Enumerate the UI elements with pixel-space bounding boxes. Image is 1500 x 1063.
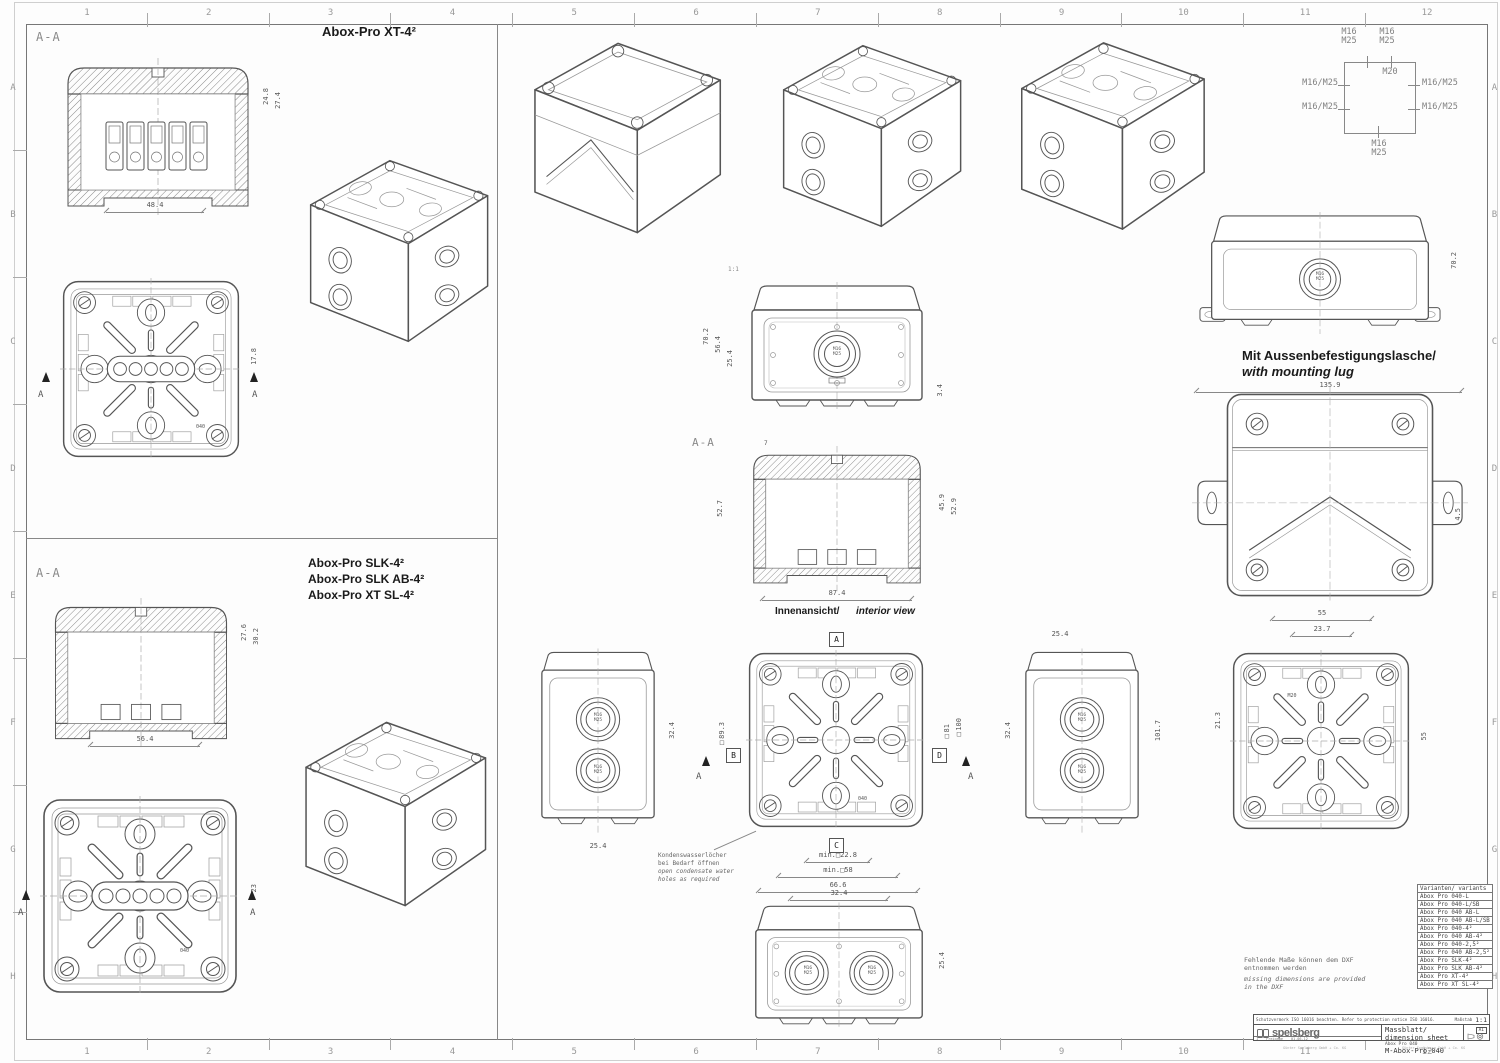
dim-line — [790, 900, 888, 901]
grid-row-label: C — [3, 278, 23, 405]
knockout-text: M16 M25 — [823, 347, 851, 357]
dim-label: min.□22.8 — [800, 851, 876, 859]
knockout-size-label: M20 — [1374, 68, 1406, 77]
view-iso-xt — [283, 140, 495, 362]
variant-name: Abox Pro 040-4² — [1418, 925, 1493, 933]
dim-label: 32.4 — [1004, 722, 1012, 739]
dim-label: 3.4 — [936, 384, 944, 397]
tick — [1408, 109, 1420, 110]
dim-line — [106, 212, 204, 213]
mold-code: 040 — [180, 948, 189, 954]
tick — [1367, 56, 1368, 68]
grid-col-label: 7 — [757, 1042, 879, 1061]
knockout-size-label: M16 M25 — [1334, 28, 1364, 46]
knockout-size-label: M16/M25 — [1280, 103, 1338, 112]
grid-col-label: 3 — [270, 1042, 392, 1061]
sheet-title: Massblatt/ dimension sheet — [1385, 1026, 1460, 1042]
dim-label: 24.8 — [262, 88, 270, 105]
mold-code: 040 — [196, 424, 205, 430]
grid-columns-top: 123456789101112 — [26, 3, 1488, 23]
section-cut-arrow — [22, 890, 30, 900]
grid-row-label: A — [1490, 24, 1499, 151]
dim-label: 25.4 — [726, 350, 734, 367]
knockout-size-label: M16/M25 — [1422, 79, 1482, 88]
variant-row: Abox Pro SLK AB-4² — [1418, 965, 1493, 973]
view-plan-interior-deep — [1230, 650, 1412, 832]
dim-label: 7 — [764, 440, 768, 447]
mounting-lug-label-en: with mounting lug — [1242, 364, 1354, 379]
knockout-text-m20: M20 — [1280, 694, 1304, 700]
variants-header: Varianten/ variants — [1418, 885, 1493, 893]
dim-label: □81 — [943, 724, 951, 740]
dim-label: 56.4 — [714, 336, 722, 353]
variant-row: Abox Pro SLK-4² — [1418, 957, 1493, 965]
dim-label: 23.7 — [1292, 625, 1352, 633]
variant-row: Abox Pro XT SL-4² — [1418, 981, 1493, 989]
format-cell: A1 — [1463, 1025, 1489, 1041]
view-side-right — [1018, 646, 1146, 838]
rev-date: 01.06.12 — [1291, 1037, 1308, 1041]
view-lug-top — [1192, 386, 1468, 604]
section-cut-arrow — [42, 372, 50, 382]
variant-row: Abox Pro 040-L — [1418, 893, 1493, 901]
tick — [1338, 85, 1350, 86]
rev-number: 1 — [1256, 1037, 1258, 1041]
grid-col-label: 6 — [635, 1042, 757, 1061]
scale-value: 1:1 — [1475, 1016, 1487, 1024]
dim-label: 21.3 — [1214, 712, 1222, 729]
section-cut-label: A — [250, 908, 255, 918]
grid-row-label: D — [1490, 405, 1499, 532]
dim-label: 45.9 — [938, 494, 946, 511]
dim-label: 32.4 — [809, 889, 869, 897]
grid-row-label: D — [3, 405, 23, 532]
dim-label: 87.4 — [802, 589, 872, 597]
scale-label: 1:1 — [728, 266, 739, 273]
section-cut-label: A — [38, 390, 43, 400]
dim-label: 55 — [1420, 732, 1428, 740]
variant-row: Abox Pro 040-L/SB — [1418, 901, 1493, 909]
grid-col-label: 7 — [757, 3, 879, 23]
dim-label: 27.4 — [274, 92, 282, 109]
dim-label: 48.4 — [120, 201, 190, 209]
variant-row: Abox Pro 040 AB-L — [1418, 909, 1493, 917]
condensate-note-de: Kondenswasserlöcher bei Bedarf öffnen — [658, 852, 778, 867]
footer-company-left: Günter Spelsberg GmbH + Co. KG — [1283, 1046, 1346, 1050]
grid-row-label: C — [1490, 278, 1499, 405]
title-abox-pro-xt4: Abox-Pro XT-4² — [322, 24, 416, 39]
dim-label: 52.9 — [950, 498, 958, 515]
view-marker-d: D — [932, 748, 947, 763]
partition-horizontal — [26, 538, 497, 539]
variant-name: Abox Pro SLK-4² — [1418, 957, 1493, 965]
interior-view-label-en: interior view — [856, 606, 915, 617]
variant-name: Abox Pro 040-L/SB — [1418, 901, 1493, 909]
grid-row-label: G — [3, 786, 23, 913]
variant-row: Abox Pro 040 AB-2,5² — [1418, 949, 1493, 957]
dim-line — [1292, 636, 1352, 637]
knockout-text: M16 M25 — [585, 713, 611, 723]
partition-vertical — [497, 24, 498, 1040]
grid-col-label: 10 — [1122, 3, 1244, 23]
missing-dims-note-en: missing dimensions are provided in the D… — [1244, 975, 1414, 991]
variant-name: Abox Pro 040 AB-2,5² — [1418, 949, 1493, 957]
title-abox-pro-slk-ab4: Abox-Pro SLK AB-4² — [308, 572, 424, 586]
variant-name: Abox Pro 040 AB-L — [1418, 909, 1493, 917]
view-iso-open-lug — [990, 22, 1215, 250]
variant-name: Abox Pro 040-L — [1418, 893, 1493, 901]
grid-row-label: B — [1490, 151, 1499, 278]
view-iso-closed — [506, 22, 728, 254]
missing-dims-note-de: Fehlende Maße können dem DXF entnommen w… — [1244, 956, 1414, 972]
dim-label: 101.7 — [1154, 720, 1162, 741]
knockout-text: M16 M25 — [1307, 272, 1333, 282]
tick — [1378, 126, 1379, 138]
view-marker-b: B — [726, 748, 741, 763]
grid-col-label: 10 — [1122, 1042, 1244, 1061]
section-label-aa: A-A — [36, 566, 61, 580]
section-cut-arrow — [248, 890, 256, 900]
grid-row-label: E — [1490, 532, 1499, 659]
grid-rows-left: ABCDEFGH — [3, 24, 23, 1040]
title-abox-pro-xt-sl4: Abox-Pro XT SL-4² — [308, 588, 414, 602]
variant-row: Abox Pro 040-2,5² — [1418, 941, 1493, 949]
mounting-lug-label-de: Mit Aussenbefestigungslasche/ — [1242, 348, 1436, 363]
dim-label: 17.8 — [250, 348, 258, 365]
dimension-sheet: 123456789101112 123456789101112 ABCDEFGH… — [0, 0, 1500, 1063]
grid-col-label: 11 — [1244, 1042, 1366, 1061]
section-cut-label: A — [252, 390, 257, 400]
dim-label: 25.4 — [938, 952, 946, 969]
variant-name: Abox Pro 040 AB-L/SB — [1418, 917, 1493, 925]
knockout-text: M16 M25 — [795, 966, 821, 976]
dim-label: min.□58 — [798, 866, 878, 874]
grid-row-label: F — [3, 659, 23, 786]
dim-label: 66.6 — [803, 881, 873, 889]
view-bottom — [746, 902, 932, 1030]
grid-row-label: B — [3, 151, 23, 278]
dim-line — [1272, 620, 1372, 621]
grid-col-label: 1 — [26, 1042, 148, 1061]
protection-notice: Schutzvermerk ISO 16016 beachten. Refer … — [1256, 1017, 1452, 1022]
dim-label: 70.2 — [1450, 252, 1458, 269]
tick — [1408, 85, 1420, 86]
view-marker-a: A — [829, 632, 844, 647]
knockout-text: M16 M25 — [1069, 765, 1095, 775]
variant-row: Abox Pro 040 AB-L/SB — [1418, 917, 1493, 925]
view-side-left — [534, 646, 662, 838]
dim-label: 70.2 — [702, 328, 710, 345]
view-iso-slk — [278, 700, 493, 928]
dim-label: 30.2 — [252, 628, 260, 645]
condensate-note-en: open condensate water holes as required — [658, 868, 778, 883]
section-cut-label: A — [968, 772, 973, 782]
title-cell: Massblatt/ dimension sheet Abox Pro 040 … — [1382, 1025, 1463, 1041]
dim-line — [778, 877, 898, 878]
section-label-aa: A-A — [36, 30, 61, 44]
revision-row: 1 Freigabe 01.06.12 — [1254, 1036, 1381, 1041]
view-section-slk — [46, 598, 236, 750]
variant-name: Abox Pro XT SL-4² — [1418, 981, 1493, 989]
tick — [1338, 109, 1350, 110]
grid-col-label: 9 — [1001, 1042, 1123, 1061]
variant-row: Abox Pro XT-4² — [1418, 973, 1493, 981]
dim-label: □89.3 — [718, 722, 726, 747]
knockout-text: M16 M25 — [1069, 713, 1095, 723]
dim-label: 56.4 — [105, 735, 185, 743]
view-iso-open — [756, 22, 968, 250]
knockout-text: M16 M25 — [585, 765, 611, 775]
dim-label: 25.4 — [1030, 630, 1090, 638]
section-cut-arrow — [702, 756, 710, 766]
grid-col-label: 2 — [148, 1042, 270, 1061]
projection-symbol-icon — [1467, 1033, 1487, 1040]
grid-col-label: 12 — [1366, 3, 1488, 23]
title-abox-pro-slk4: Abox-Pro SLK-4² — [308, 556, 404, 570]
footer-company-right: Günter Spelsberg GmbH + Co. KG — [1402, 1046, 1465, 1050]
grid-col-label: 11 — [1244, 3, 1366, 23]
dim-label: 32.4 — [668, 722, 676, 739]
knockout-size-label: M16/M25 — [1422, 103, 1482, 112]
dim-line — [762, 600, 912, 601]
variant-name: Abox Pro SLK AB-4² — [1418, 965, 1493, 973]
grid-col-label: 6 — [635, 3, 757, 23]
dim-line — [90, 746, 200, 747]
grid-col-label: 8 — [879, 3, 1001, 23]
grid-columns-bottom: 123456789101112 — [26, 1042, 1488, 1061]
dim-label: 25.4 — [562, 842, 634, 850]
view-section-xt — [58, 58, 258, 218]
grid-col-label: 5 — [513, 3, 635, 23]
logo-cell: spelsberg 1 Freigabe 01.06.12 — [1254, 1025, 1382, 1041]
grid-col-label: 9 — [1001, 3, 1123, 23]
grid-col-label: 5 — [513, 1042, 635, 1061]
dim-label: □100 — [955, 718, 963, 739]
variant-row: Abox Pro 040-4² — [1418, 925, 1493, 933]
variant-row: Abox Pro 040 AB-4² — [1418, 933, 1493, 941]
title-block: Schutzvermerk ISO 16016 beachten. Refer … — [1253, 1014, 1490, 1041]
section-cut-label: A — [18, 908, 23, 918]
grid-col-label: 4 — [391, 3, 513, 23]
knockout-size-label: M16 M25 — [1372, 28, 1402, 46]
knockout-text: M16 M25 — [859, 966, 885, 976]
section-cut-label: A — [696, 772, 701, 782]
section-cut-arrow — [962, 756, 970, 766]
grid-col-label: 2 — [148, 3, 270, 23]
grid-row-label: F — [1490, 659, 1499, 786]
protection-row: Schutzvermerk ISO 16016 beachten. Refer … — [1254, 1015, 1489, 1025]
scale-caption: Maßstab — [1455, 1017, 1473, 1022]
dim-label: 55 — [1282, 609, 1362, 617]
variant-name: Abox Pro 040 AB-4² — [1418, 933, 1493, 941]
view-plan-slk — [40, 796, 240, 996]
dim-label: 27.6 — [240, 624, 248, 641]
grid-col-label: 4 — [391, 1042, 513, 1061]
mold-code: 040 — [858, 796, 867, 802]
section-cut-arrow — [250, 372, 258, 382]
grid-col-label: 8 — [879, 1042, 1001, 1061]
interior-view-label-de: Innenansicht/ — [775, 606, 839, 617]
rev-label: Freigabe — [1266, 1037, 1283, 1041]
knockout-size-label: M16/M25 — [1280, 79, 1338, 88]
view-plan-xt — [60, 278, 242, 460]
view-plan-interior — [746, 650, 926, 830]
grid-col-label: 1 — [26, 3, 148, 23]
dim-label: 52.7 — [716, 500, 724, 517]
grid-col-label: 3 — [270, 3, 392, 23]
grid-row-label: H — [3, 913, 23, 1040]
section-label-aa: A-A — [692, 436, 715, 449]
view-section-center — [742, 446, 932, 594]
grid-row-label: E — [3, 532, 23, 659]
variant-name: Abox Pro XT-4² — [1418, 973, 1493, 981]
dim-line — [806, 862, 870, 863]
knockout-size-label: M16 M25 — [1344, 140, 1414, 158]
dim-label: 4.5 — [1454, 508, 1462, 521]
grid-row-label: A — [3, 24, 23, 151]
variant-name: Abox Pro 040-2,5² — [1418, 941, 1493, 949]
variants-table: Varianten/ variants Abox Pro 040-LAbox P… — [1417, 884, 1493, 989]
knockout-layout-diagram: M16 M25 M16 M25 M16/M25 M16/M25 M16/M25 … — [1288, 26, 1488, 186]
